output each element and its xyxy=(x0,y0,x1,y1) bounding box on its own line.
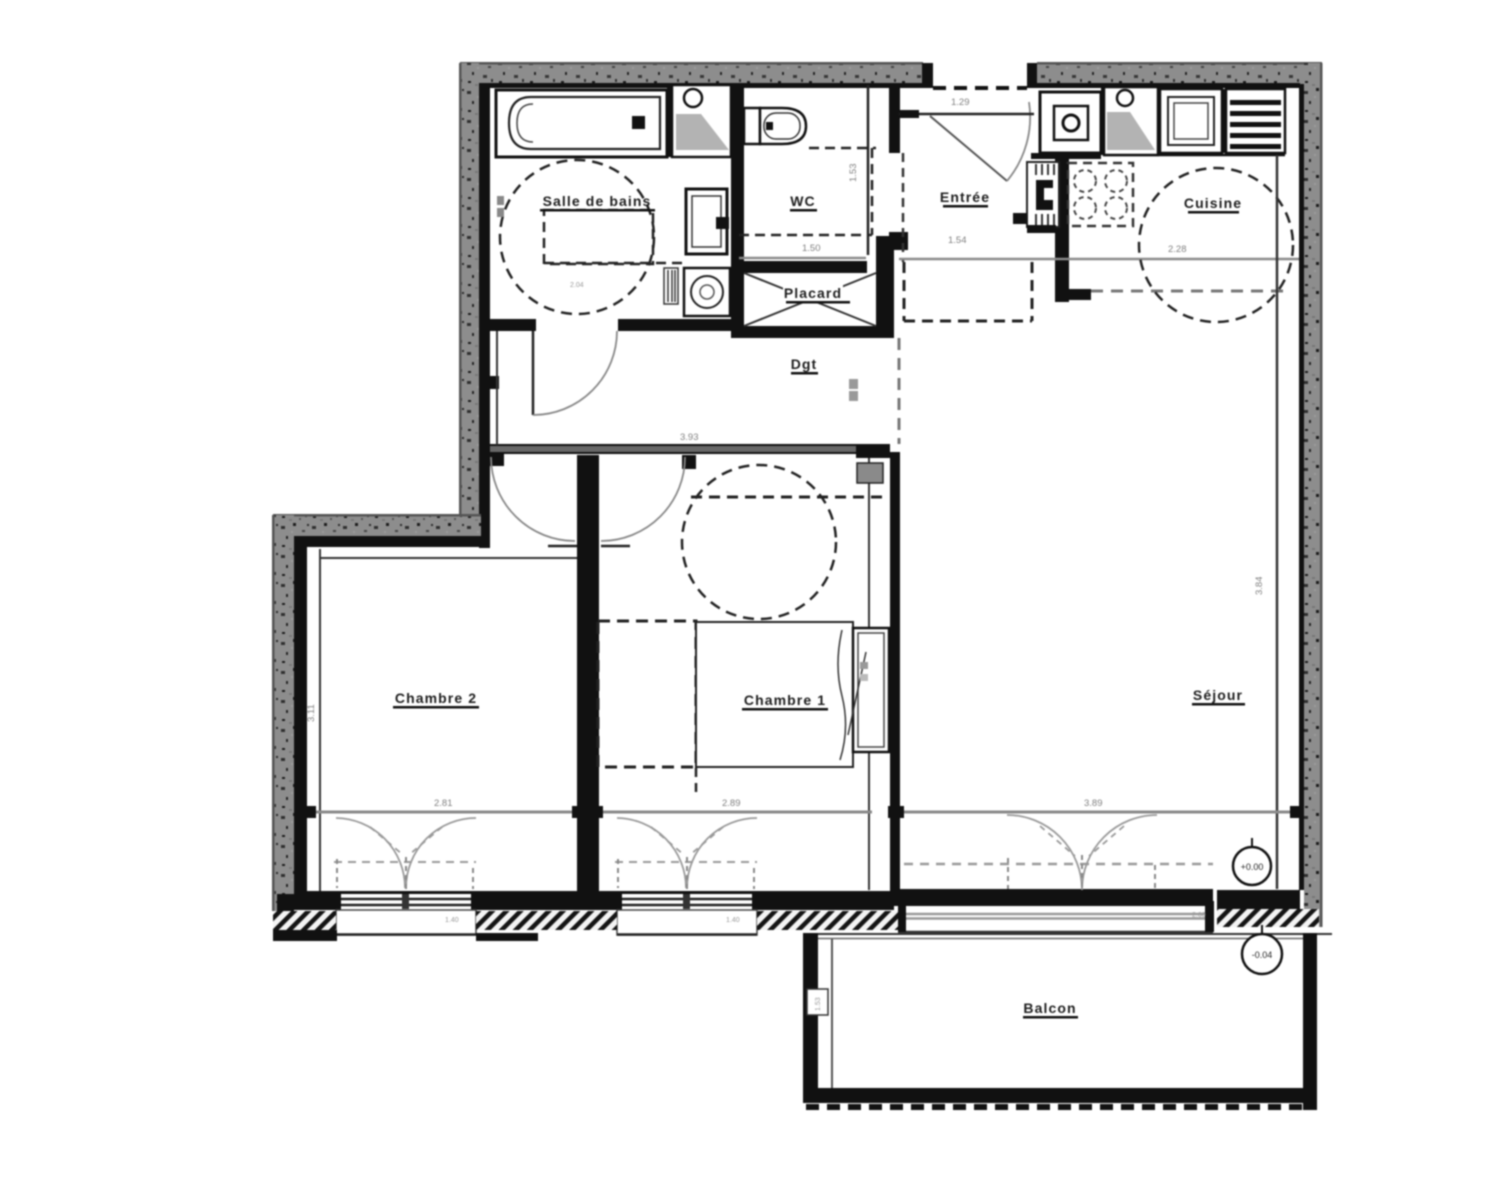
svg-text:2.81: 2.81 xyxy=(434,798,453,809)
svg-text:2.28: 2.28 xyxy=(1168,244,1187,255)
svg-text:1.53: 1.53 xyxy=(815,997,822,1011)
svg-text:3.89: 3.89 xyxy=(1084,798,1103,809)
svg-text:+0.00: +0.00 xyxy=(1241,862,1264,872)
svg-text:WC: WC xyxy=(790,193,816,209)
svg-text:Placard: Placard xyxy=(784,285,842,301)
svg-text:1.53: 1.53 xyxy=(848,164,859,183)
svg-text:1.40: 1.40 xyxy=(445,917,459,924)
svg-text:2.89: 2.89 xyxy=(722,798,741,809)
svg-text:3.11: 3.11 xyxy=(306,704,317,722)
svg-text:3.84: 3.84 xyxy=(1254,577,1265,596)
svg-text:-0.04: -0.04 xyxy=(1252,950,1273,960)
svg-text:2.04: 2.04 xyxy=(570,282,584,289)
svg-text:Balcon: Balcon xyxy=(1023,1000,1076,1016)
svg-text:Chambre 1: Chambre 1 xyxy=(744,692,826,708)
svg-text:Entrée: Entrée xyxy=(940,189,990,205)
svg-text:Cuisine: Cuisine xyxy=(1184,195,1242,211)
svg-text:1.50: 1.50 xyxy=(802,243,821,254)
svg-text:3.93: 3.93 xyxy=(680,432,699,443)
svg-text:2.60: 2.60 xyxy=(1192,912,1206,919)
svg-text:Séjour: Séjour xyxy=(1193,687,1243,703)
svg-text:1.54: 1.54 xyxy=(948,235,967,246)
svg-text:Chambre 2: Chambre 2 xyxy=(395,690,477,706)
svg-text:Dgt: Dgt xyxy=(791,356,818,372)
svg-text:Salle de bains: Salle de bains xyxy=(543,193,652,209)
svg-text:1.40: 1.40 xyxy=(726,917,740,924)
svg-text:1.29: 1.29 xyxy=(951,97,970,108)
